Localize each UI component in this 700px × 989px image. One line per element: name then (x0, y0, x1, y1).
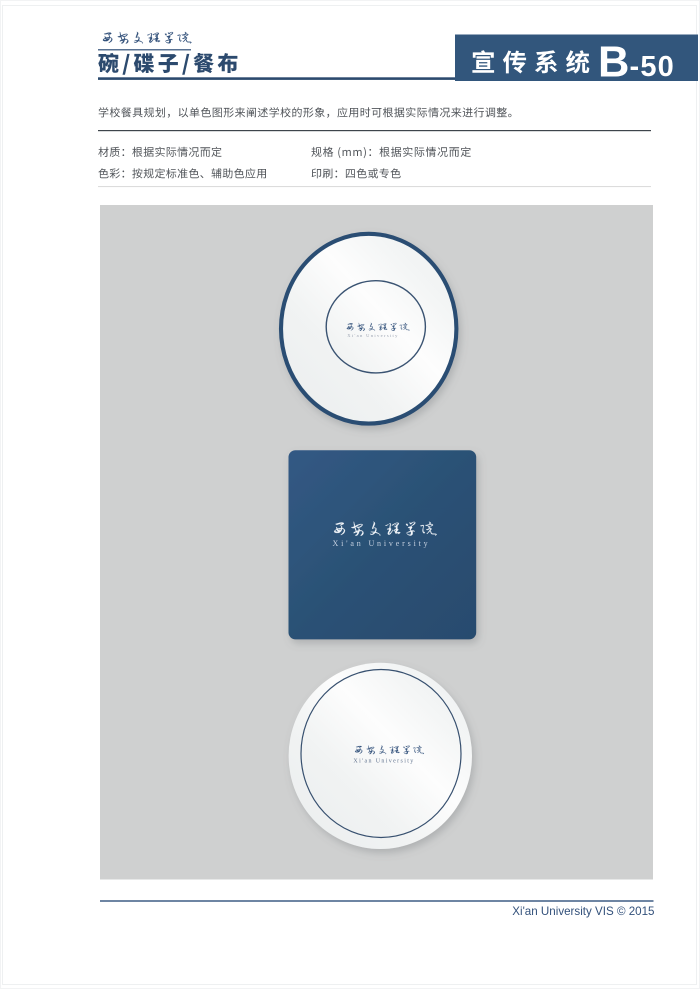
svg-text:Xi'an University: Xi'an University (353, 758, 414, 764)
svg-text:-50: -50 (630, 51, 676, 83)
svg-text:Xi'an University VIS © 2015: Xi'an University VIS © 2015 (512, 905, 654, 918)
svg-text:Xi'an University: Xi'an University (332, 539, 430, 548)
svg-text:B: B (598, 39, 629, 87)
svg-text:Xi'an University: Xi'an University (347, 333, 399, 338)
